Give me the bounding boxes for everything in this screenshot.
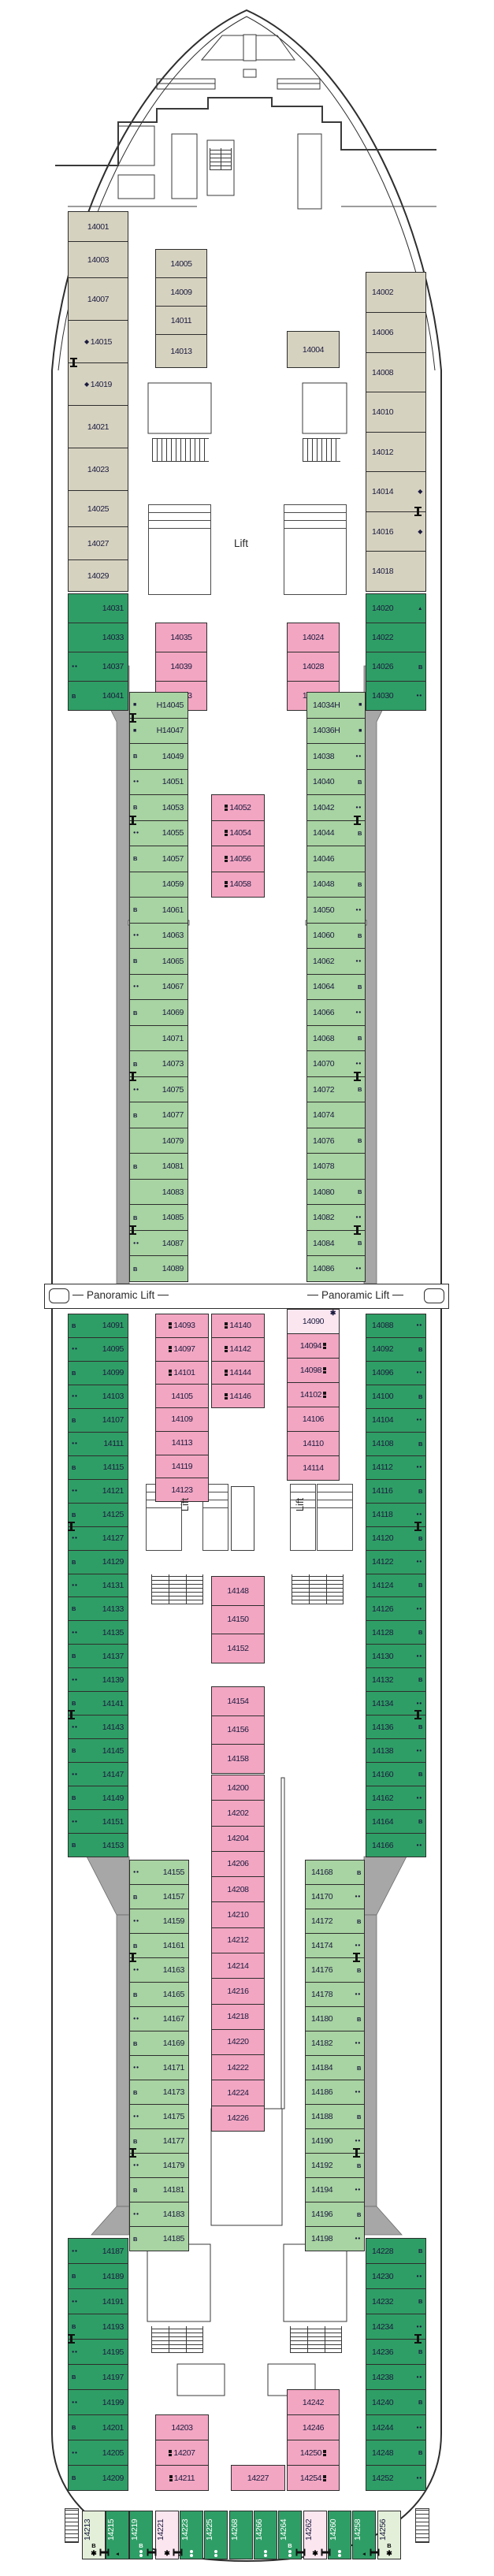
cabin-number: 14152: [227, 1644, 248, 1653]
symbol-dots-icon: ●●: [72, 1347, 78, 1351]
symbol-dots-icon: ●●: [72, 2299, 78, 2304]
cabin-14010: 14010: [366, 392, 426, 433]
symbol-B-icon: B: [72, 1322, 76, 1329]
cabin-number: 14178: [311, 1990, 332, 1999]
cabin-number: 14016: [372, 527, 393, 537]
cabin-number: 14028: [303, 662, 324, 671]
cabin-14146: 14146: [211, 1384, 265, 1408]
symbol-B-icon: B: [418, 2298, 422, 2305]
symbol-dots-icon: ●●: [72, 1441, 78, 1446]
cabin-number: 14208: [227, 1885, 248, 1894]
cabin-number: 14128: [372, 1628, 393, 1637]
symbol-B-icon: B: [418, 1818, 422, 1825]
cabin-14210: 14210: [211, 1901, 265, 1927]
cabin-14107: B14107: [68, 1408, 128, 1433]
symbol-ast-icon: ✱: [164, 2550, 170, 2557]
symbol-dots-icon: ●●: [133, 831, 139, 835]
cabin-14096: 14096●●: [366, 1361, 426, 1385]
cabin-number: 14148: [227, 1586, 248, 1596]
cabin-14201: B14201: [68, 2414, 128, 2440]
symbol-dots-icon: ●●: [72, 1630, 78, 1635]
symbol-B-icon: B: [418, 664, 422, 671]
cabin-14145: B14145: [68, 1738, 128, 1763]
cabin-14062: 14062●●: [306, 948, 366, 975]
cabin-number: 14001: [87, 222, 109, 232]
symbol-dots-icon: ●●: [355, 1943, 361, 1948]
cabin-14196: 14196B: [305, 2202, 365, 2227]
cabin-number: 14160: [372, 1770, 393, 1779]
symbol-dots-icon: ●●: [355, 908, 362, 913]
cabin-14139: ●●14139: [68, 1667, 128, 1692]
cabin-number: 14027: [87, 539, 109, 548]
cabin-number: 14184: [311, 2063, 332, 2072]
symbol-dotsV-icon: [214, 2550, 217, 2557]
symbol-dots-icon: ●●: [133, 1919, 139, 1924]
deck-plan: Panoramic Lift Panoramic Lift Lift Lift …: [0, 0, 494, 2576]
cabin-14093: 14093: [155, 1314, 209, 1338]
connecting-cabins-icon: [417, 1711, 419, 1719]
cabin-number: 14069: [162, 1008, 184, 1017]
cabin-number: 14010: [372, 407, 393, 417]
cabin-number: 14200: [227, 1783, 248, 1793]
cabin-14212: 14212: [211, 1927, 265, 1953]
symbol-B-icon: B: [133, 2040, 137, 2047]
cabin-number: 14059: [162, 879, 184, 889]
cabin-14181: B14181: [129, 2177, 189, 2202]
cabin-number: 14209: [102, 2474, 124, 2483]
cabin-14080: 14080B: [306, 1179, 366, 1206]
cabin-14178: 14178●●: [305, 1982, 365, 2007]
cabin-14157: B14157: [129, 1884, 189, 1909]
cabin-14090: 14090✱: [287, 1309, 340, 1334]
symbol-sq2-icon: [225, 1322, 228, 1329]
cabin-14223: 14223: [180, 2511, 203, 2559]
cabin-H14047: ■H14047: [129, 718, 188, 745]
cabin-14007: 14007: [68, 277, 128, 321]
cabin-14028: 14028: [287, 652, 340, 682]
symbol-B-icon: B: [357, 2211, 361, 2218]
cabin-number: 14101: [173, 1368, 195, 1377]
cabin-number: 14158: [227, 1754, 248, 1764]
symbol-B-icon: B: [139, 2542, 143, 2549]
cabin-number: 14019: [91, 380, 112, 389]
cabin-number: 14096: [372, 1368, 393, 1377]
cabin-number: 14053: [162, 803, 184, 812]
cabin-number: 14104: [372, 1415, 393, 1425]
cabin-14113: 14113: [155, 1431, 209, 1455]
symbol-ast-icon: ✱: [91, 2550, 97, 2557]
cabin-14242: 14242: [287, 2389, 340, 2415]
cabin-14088: 14088●●: [366, 1314, 426, 1338]
symbol-dots-icon: ●●: [133, 1241, 139, 1246]
cabin-number: 14089: [162, 1264, 184, 1273]
cabin-number: 14035: [170, 633, 191, 642]
cabin-number: 14260: [329, 2514, 351, 2545]
cabin-14022: 14022: [366, 623, 426, 652]
cabin-number: 14084: [313, 1239, 334, 1248]
cabin-14160: 14160B: [366, 1762, 426, 1786]
cabin-14132: 14132B: [366, 1667, 426, 1692]
cabin-14058: 14058: [211, 872, 265, 898]
cabin-14130: 14130●●: [366, 1644, 426, 1668]
cabin-14173: B14173: [129, 2080, 189, 2105]
cabin-14056: 14056: [211, 846, 265, 872]
symbol-B-icon: B: [133, 804, 137, 811]
symbol-sq2-icon: [323, 2450, 326, 2456]
cabin-14250: 14250: [287, 2440, 340, 2466]
symbol-sq1-icon: ■: [133, 702, 136, 708]
cabin-14049: B14049: [129, 743, 188, 770]
cabin-number: 14142: [229, 1344, 251, 1354]
cabin-number: 14004: [303, 345, 324, 355]
cabin-14246: 14246: [287, 2414, 340, 2440]
cabin-14135: ●●14135: [68, 1620, 128, 1645]
cabin-14083: 14083: [129, 1179, 188, 1206]
symbol-dots-icon: ●●: [416, 1701, 422, 1706]
symbol-dots-icon: ●●: [72, 2249, 78, 2254]
forward-stairs-right-icon: [303, 438, 340, 462]
cabin-number: 14124: [372, 1581, 393, 1590]
cabin-14054: 14054: [211, 820, 265, 847]
cabin-14059: 14059: [129, 872, 188, 898]
cabin-number: 14036H: [313, 726, 340, 735]
cabin-number: 14146: [229, 1392, 251, 1401]
symbol-B-icon: B: [357, 1918, 361, 1925]
cabin-number: 14165: [163, 1990, 184, 1999]
cabin-number: 14029: [87, 571, 109, 581]
symbol-dots-icon: ●●: [416, 1323, 422, 1328]
stern-stairs-left-icon: [151, 2326, 203, 2353]
cabin-number: 14252: [372, 2474, 393, 2483]
cabin-14143: ●●14143: [68, 1715, 128, 1739]
cabin-number: 14262: [304, 2514, 326, 2545]
cabin-number: 14037: [102, 662, 124, 671]
symbol-sq2-icon: [323, 1392, 326, 1398]
cabin-number: 14228: [372, 2247, 393, 2256]
cabin-14085: B14085: [129, 1204, 188, 1231]
connecting-cabins-icon: [355, 2149, 358, 2157]
symbol-dots-icon: ●●: [133, 1087, 139, 1092]
symbol-dots-icon: ●●: [133, 1968, 139, 1972]
cabin-number: 14258: [353, 2514, 375, 2545]
cabin-number: 14013: [170, 347, 191, 356]
symbol-sq1-icon: ■: [133, 728, 136, 734]
cabin-number: H14045: [157, 701, 184, 710]
symbol-ast-icon: ✱: [386, 2550, 392, 2557]
cabin-number: 14190: [311, 2136, 332, 2146]
cabin-14006: 14006: [366, 312, 426, 353]
cabin-number: 14264: [279, 2514, 301, 2545]
cabin-number: 14068: [313, 1034, 334, 1043]
cabin-14094: 14094: [287, 1333, 340, 1359]
cabin-number: 14232: [372, 2297, 393, 2307]
cabin-number: 14177: [163, 2136, 184, 2146]
cabin-number: 14139: [102, 1675, 124, 1685]
cabin-number: 14179: [163, 2161, 184, 2170]
cabin-number: 14138: [372, 1746, 393, 1756]
symbol-triL-icon: ◄: [362, 2552, 366, 2557]
cabin-number: 14220: [227, 2037, 248, 2046]
cabin-14039: 14039: [155, 652, 207, 682]
symbol-sq2-icon: [169, 1322, 172, 1329]
cabin-number: 14230: [372, 2272, 393, 2281]
cabin-14034H: 14034H■: [306, 692, 366, 719]
cabin-14095: ●●14095: [68, 1337, 128, 1362]
cabin-14211: 14211: [155, 2465, 209, 2491]
symbol-dots-icon: ●●: [72, 2400, 78, 2405]
symbol-B-icon: B: [418, 2399, 422, 2406]
symbol-B-icon: B: [418, 2449, 422, 2456]
symbol-dia-icon: ◆: [418, 529, 422, 535]
symbol-B-icon: B: [72, 1700, 76, 1707]
symbol-sq2-icon: [323, 1343, 326, 1349]
cabin-14020: 14020▲: [366, 593, 426, 623]
cabin-14008: 14008: [366, 352, 426, 392]
symbol-dots-icon: ●●: [416, 1418, 422, 1422]
cabin-number: 14098: [300, 1366, 321, 1375]
cabin-number: 14108: [372, 1439, 393, 1448]
cabin-14202: 14202: [211, 1800, 265, 1826]
symbol-sq2-icon: [323, 2475, 326, 2481]
cabin-14050: 14050●●: [306, 897, 366, 924]
symbol-B-icon: B: [72, 693, 76, 700]
connecting-cabins-icon: [101, 2552, 109, 2554]
cabin-number: 14079: [162, 1136, 184, 1146]
cabin-14027: 14027: [68, 526, 128, 560]
cabin-number: 14073: [162, 1059, 184, 1069]
cabin-14141: B14141: [68, 1691, 128, 1715]
symbol-B-icon: B: [418, 1535, 422, 1542]
symbol-dots-icon: ●●: [355, 1992, 361, 1997]
cabin-14167: ●●14167: [129, 2006, 189, 2031]
cabin-14188: 14188B: [305, 2104, 365, 2129]
cabin-number: 14150: [227, 1615, 248, 1624]
cabin-number: 14227: [247, 2474, 269, 2483]
cabin-14033: 14033: [68, 623, 128, 652]
cabin-number: 14018: [372, 567, 393, 576]
cabin-number: 14099: [102, 1368, 124, 1377]
cabin-14063: ●●14063: [129, 923, 188, 950]
cabin-number: 14154: [227, 1697, 248, 1706]
cabin-number: 14182: [311, 2039, 332, 2048]
cabin-14225: 14225: [204, 2511, 228, 2559]
cabin-14129: B14129: [68, 1550, 128, 1574]
cabin-14092: 14092B: [366, 1337, 426, 1362]
symbol-dots-icon: ●●: [72, 1820, 78, 1824]
cabin-number: 14194: [311, 2185, 332, 2195]
cabin-14065: B14065: [129, 948, 188, 975]
cabin-number: 14206: [227, 1859, 248, 1868]
cabin-14024: 14024: [287, 623, 340, 652]
symbol-sq2-icon: [225, 830, 228, 836]
cabin-number: 14188: [311, 2112, 332, 2121]
symbol-B-icon: B: [72, 2373, 76, 2381]
cabin-14109: 14109: [155, 1407, 209, 1432]
connecting-cabins-icon: [132, 816, 134, 824]
cabin-14140: 14140: [211, 1314, 265, 1338]
symbol-dots-icon: ●●: [133, 779, 139, 784]
cabin-number: 14186: [311, 2087, 332, 2097]
cabin-14161: B14161: [129, 1933, 189, 1958]
cabin-14152: 14152: [211, 1634, 265, 1663]
cabin-14156: 14156: [211, 1715, 265, 1745]
symbol-B-icon: B: [72, 1370, 76, 1377]
cabin-14170: 14170●●: [305, 1884, 365, 1909]
symbol-dots-icon: ●●: [416, 1370, 422, 1375]
symbol-B-icon: B: [418, 1723, 422, 1730]
cabin-14150: 14150: [211, 1605, 265, 1635]
symbol-dots-icon: ●●: [133, 2114, 139, 2119]
cabin-number: 14024: [303, 633, 324, 642]
symbol-dots-icon: ●●: [355, 1894, 361, 1899]
cabin-number: 14087: [162, 1239, 184, 1248]
cabin-H14045: ■H14045: [129, 692, 188, 719]
cabin-14142: 14142: [211, 1337, 265, 1362]
leader-line: [158, 1295, 169, 1295]
cabin-14171: ●●14171: [129, 2055, 189, 2080]
cabin-number: 14244: [372, 2423, 393, 2433]
symbol-B-icon: B: [358, 983, 362, 991]
cabin-number: 14007: [87, 295, 109, 304]
cabin-14232: 14232B: [366, 2288, 426, 2314]
symbol-B-icon: B: [358, 779, 362, 786]
symbol-dots-icon: ●●: [355, 2188, 361, 2192]
symbol-dots-icon: ●●: [72, 1772, 78, 1777]
cabin-14016: 14016◆: [366, 511, 426, 552]
symbol-dots-icon: ●●: [416, 1796, 422, 1801]
symbol-B-icon: B: [72, 2323, 76, 2330]
connecting-cabins-icon: [356, 816, 358, 824]
cabin-14137: B14137: [68, 1644, 128, 1668]
cabin-number: 14090: [303, 1317, 324, 1326]
cabin-number: 14140: [229, 1321, 251, 1330]
cabin-number: 14180: [311, 2014, 332, 2024]
cabin-14121: ●●14121: [68, 1479, 128, 1504]
cabin-number: 14061: [162, 905, 184, 915]
symbol-dots-icon: ●●: [416, 1512, 422, 1517]
cabin-14102: 14102: [287, 1382, 340, 1407]
cabin-14180: 14180B: [305, 2006, 365, 2031]
cabin-number: 14156: [227, 1725, 248, 1734]
cabin-number: 14225: [205, 2514, 227, 2545]
cabin-14067: ●●14067: [129, 974, 188, 1001]
stern-hatch-left-icon: [65, 2508, 79, 2543]
cabin-14166: 14166●●: [366, 1833, 426, 1857]
cabin-number: 14072: [313, 1085, 334, 1095]
cabin-number: 14121: [102, 1486, 124, 1496]
forward-stairs-left-icon: [152, 438, 209, 462]
cabin-14119: 14119: [155, 1455, 209, 1479]
cabin-number: 14055: [162, 828, 184, 838]
cabin-number: 14052: [229, 803, 251, 812]
cabin-14138: 14138●●: [366, 1738, 426, 1763]
cabin-14205: ●●14205: [68, 2440, 128, 2466]
cabin-number: 14009: [170, 288, 191, 297]
cabin-14064: 14064B: [306, 974, 366, 1001]
cabin-number: 14197: [102, 2373, 124, 2382]
cabin-14144: 14144: [211, 1361, 265, 1385]
cabin-number: 14207: [173, 2448, 195, 2458]
cabin-14197: B14197: [68, 2364, 128, 2390]
symbol-dotsV-icon: [190, 2550, 193, 2557]
symbol-sq2-icon: [225, 1370, 228, 1376]
stern-hatch-right-icon: [415, 2508, 429, 2543]
cabin-number: 14070: [313, 1059, 334, 1069]
cabin-number: 14046: [313, 854, 334, 864]
cabin-14153: B14153: [68, 1833, 128, 1857]
symbol-dots-icon: ●●: [416, 2325, 422, 2329]
cabin-number: 14250: [300, 2448, 321, 2458]
cabin-number: 14102: [300, 1390, 321, 1400]
cabin-14215: 14215◄: [106, 2511, 129, 2559]
connecting-cabins-icon: [322, 2552, 330, 2554]
symbol-dots-icon: ●●: [416, 1559, 422, 1564]
cabin-14131: ●●14131: [68, 1574, 128, 1598]
cabin-14179: ●●14179: [129, 2153, 189, 2178]
cabin-number: 14196: [311, 2210, 332, 2219]
cabin-14228: 14228B: [366, 2238, 426, 2264]
cabin-number: 14063: [162, 931, 184, 940]
symbol-B-icon: B: [91, 2542, 95, 2549]
symbol-sq2-icon: [225, 1346, 228, 1352]
cabin-14097: 14097: [155, 1337, 209, 1362]
symbol-dots-icon: ●●: [416, 2274, 422, 2279]
connecting-cabins-icon: [132, 1226, 134, 1234]
cabin-number: 14092: [372, 1344, 393, 1354]
cabin-number: 14060: [313, 931, 334, 940]
cabin-14183: ●●14183: [129, 2202, 189, 2227]
symbol-B-icon: B: [418, 2348, 422, 2355]
cabin-14108: 14108B: [366, 1432, 426, 1456]
symbol-triL-icon: ◄: [115, 2552, 120, 2557]
cabin-14127: ●●14127: [68, 1526, 128, 1551]
connecting-cabins-icon: [148, 2552, 156, 2554]
symbol-B-icon: B: [72, 2474, 76, 2481]
lift-label-aft-left: Lift: [179, 1498, 191, 1511]
symbol-B-icon: B: [72, 1417, 76, 1424]
cabin-number: 14106: [303, 1414, 324, 1424]
cabin-14073: B14073: [129, 1050, 188, 1077]
symbol-dots-icon: ●●: [72, 1536, 78, 1541]
cabin-14149: B14149: [68, 1786, 128, 1810]
cabin-number: 14048: [313, 879, 334, 889]
cabin-number: 14133: [102, 1604, 124, 1614]
cabin-14037: ●●14037: [68, 652, 128, 682]
cabin-14079: 14079: [129, 1128, 188, 1154]
symbol-B-icon: B: [72, 1747, 76, 1754]
cabin-number: 14223: [180, 2514, 202, 2545]
cabin-14012: 14012: [366, 432, 426, 472]
leader-line: [72, 1295, 84, 1295]
cabin-14104: 14104●●: [366, 1408, 426, 1433]
cabin-14011: 14011: [155, 306, 207, 335]
symbol-sq2-icon: [225, 1393, 228, 1400]
cabin-14266: 14266: [254, 2511, 277, 2559]
cabin-number: 14199: [102, 2398, 124, 2407]
symbol-B-icon: B: [72, 1511, 76, 1518]
cabin-14018: 14018: [366, 551, 426, 592]
cabin-14023: 14023: [68, 448, 128, 491]
cabin-number: 14171: [163, 2063, 184, 2072]
symbol-sq2-icon: [169, 1370, 172, 1376]
cabin-number: 14041: [102, 691, 124, 701]
cabin-number: 14114: [303, 1463, 323, 1473]
cabin-number: 14074: [313, 1110, 334, 1120]
cabin-14076: 14076B: [306, 1128, 366, 1154]
symbol-dots-icon: ●●: [416, 1843, 422, 1848]
cabin-number: 14008: [372, 368, 393, 377]
cabin-number: 14144: [229, 1368, 251, 1377]
